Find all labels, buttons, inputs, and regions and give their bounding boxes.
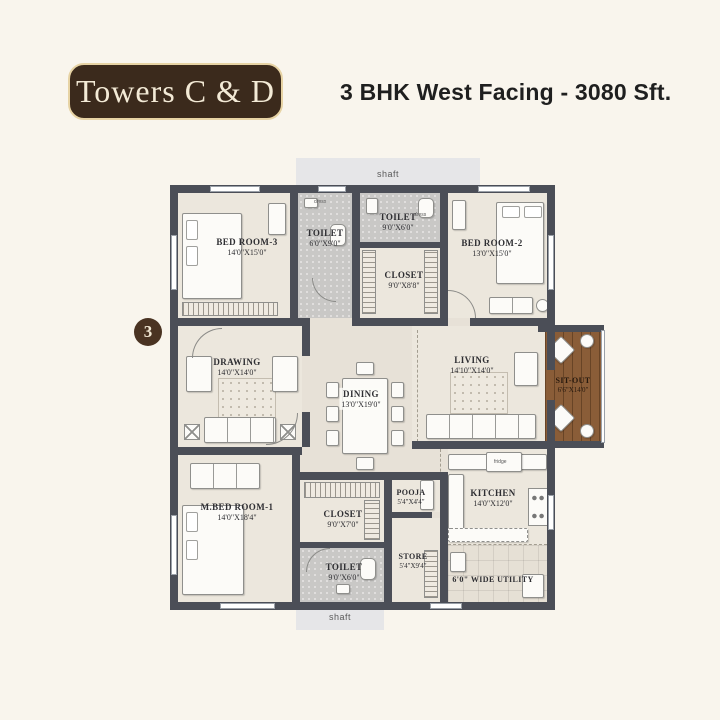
window <box>430 603 462 609</box>
label-dress: dress <box>314 199 326 205</box>
wall <box>412 441 547 449</box>
wall <box>392 472 440 480</box>
bed-pillow <box>186 540 198 560</box>
wall <box>290 193 298 318</box>
wall <box>384 472 392 602</box>
kitchen-counter <box>448 474 464 530</box>
kitchen-counter <box>448 528 528 542</box>
label-toilet3: TOILET 6'0"X9'0" <box>307 228 344 248</box>
utility-divider-line <box>448 544 547 545</box>
dining-chair <box>391 406 404 422</box>
label-store: STORE 5'4"X9'4" <box>399 552 428 570</box>
label-dress: dress <box>414 212 426 218</box>
label-sitout: SIT-OUT 6'6"X14'0" <box>556 376 591 394</box>
armchair <box>272 356 298 392</box>
window <box>478 186 530 192</box>
page-title: 3 BHK West Facing - 3080 Sft. <box>340 79 671 106</box>
rug <box>218 378 276 418</box>
wardrobe <box>362 250 376 314</box>
wall <box>178 318 310 326</box>
wall <box>392 512 432 518</box>
towers-badge-label: Towers C & D <box>76 73 275 110</box>
bed-pillow <box>186 220 198 240</box>
dining-chair <box>356 362 374 375</box>
label-living: LIVING 14'10"X14'0" <box>450 355 493 375</box>
dining-chair <box>326 382 339 398</box>
wardrobe <box>364 500 380 540</box>
label-toilet2: TOILET 9'0"X6'0" <box>380 212 417 232</box>
window <box>220 603 275 609</box>
wall <box>302 412 310 447</box>
dining-chair <box>326 406 339 422</box>
wardrobe <box>304 482 380 498</box>
stove <box>528 488 548 526</box>
patio-table <box>580 424 594 438</box>
armchair <box>186 356 212 392</box>
bed-pillow <box>524 206 542 218</box>
label-drawing: DRAWING 14'0"X14'0" <box>213 357 260 377</box>
wall <box>440 193 448 318</box>
label-bedroom2: BED ROOM-2 13'0"X15'0" <box>461 238 522 258</box>
label-mbedroom1: M.BED ROOM-1 14'0"X18'4" <box>201 502 274 522</box>
wall <box>360 242 448 248</box>
wall <box>302 326 310 356</box>
beam-line <box>417 330 418 442</box>
label-bedroom3: BED ROOM-3 14'0"X15'0" <box>216 237 277 257</box>
bed-pillow <box>186 512 198 532</box>
shaft-bottom-label: shaft <box>329 612 351 622</box>
wall <box>538 441 604 448</box>
label-toilet1: TOILET 9'0"X6'0" <box>326 562 363 582</box>
wall <box>440 472 448 602</box>
window <box>210 186 260 192</box>
label-dining: DINING 13'0"X19'0" <box>339 388 382 410</box>
unit-number-badge: 3 <box>134 318 162 346</box>
sofa <box>426 414 536 439</box>
side-table <box>184 424 200 440</box>
label-closet2: CLOSET 9'0"X8'8" <box>385 270 424 290</box>
bench <box>489 297 533 314</box>
dining-chair <box>356 457 374 470</box>
dresser <box>268 203 286 235</box>
window <box>548 235 554 290</box>
window <box>171 515 177 575</box>
wardrobe <box>182 302 278 316</box>
window <box>318 186 346 192</box>
shaft-top-label: shaft <box>377 169 399 179</box>
dining-chair <box>391 382 404 398</box>
wall <box>178 447 302 455</box>
label-fridge: fridge <box>494 459 507 465</box>
wall <box>360 318 448 326</box>
towers-badge: Towers C & D <box>68 63 283 120</box>
wall <box>352 193 360 326</box>
label-pooja: POOJA 5'4"X4'4" <box>396 488 425 506</box>
washbasin <box>336 584 350 594</box>
toilet-wc <box>360 558 376 580</box>
wall <box>547 400 555 441</box>
washbasin <box>366 198 378 214</box>
wardrobe <box>424 250 438 314</box>
label-closet1: CLOSET 9'0"X7'0" <box>324 509 363 529</box>
utility-sink <box>450 552 466 572</box>
wall <box>538 325 604 332</box>
dresser <box>452 200 466 230</box>
armchair <box>514 352 538 386</box>
rug <box>450 372 508 414</box>
wall <box>292 455 300 602</box>
bed-pillow <box>502 206 520 218</box>
window <box>171 235 177 290</box>
wall <box>300 542 384 548</box>
patio-table <box>580 334 594 348</box>
sitout-railing <box>601 330 605 443</box>
bed-pillow <box>186 246 198 266</box>
label-kitchen: KITCHEN 14'0"X12'0" <box>470 488 515 508</box>
label-utility: 6'0" WIDE UTILITY <box>452 575 533 585</box>
bench <box>190 463 260 489</box>
dining-chair <box>326 430 339 446</box>
dining-chair <box>391 430 404 446</box>
floorplan-poster: { "header": { "badge_label": "Towers C &… <box>0 0 720 720</box>
wall <box>300 472 392 480</box>
window <box>548 495 554 530</box>
